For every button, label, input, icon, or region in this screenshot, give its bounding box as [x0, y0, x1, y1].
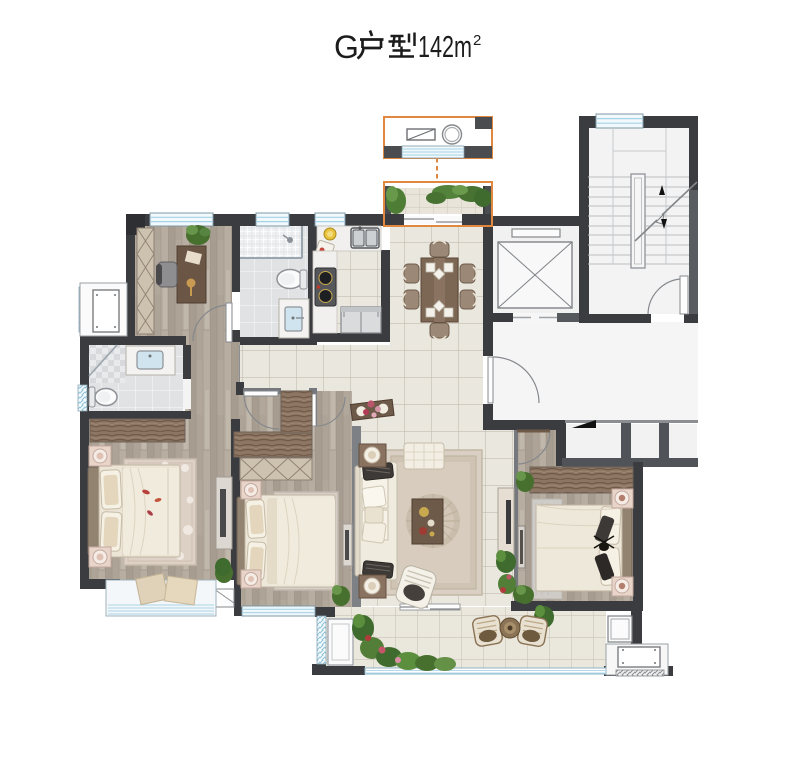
svg-text:142m: 142m: [418, 29, 472, 64]
svg-text:G: G: [334, 29, 359, 65]
svg-text:2: 2: [473, 32, 481, 49]
